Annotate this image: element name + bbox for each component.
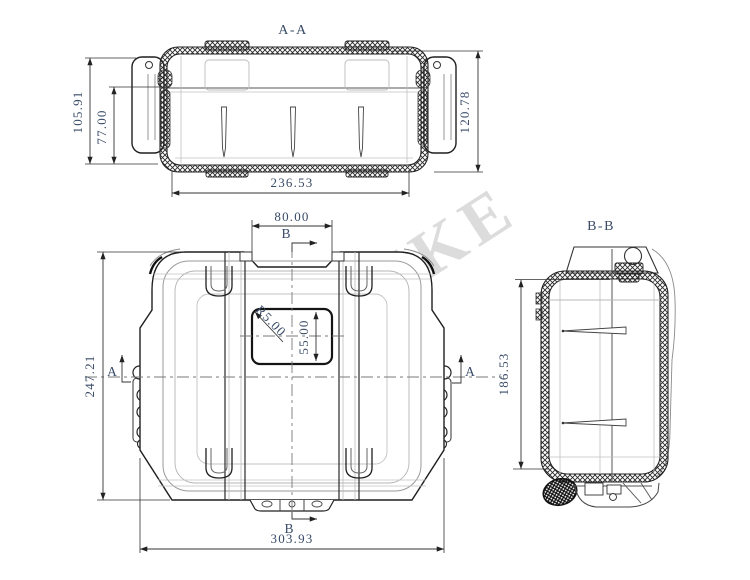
section-aa-label: A-A — [278, 23, 307, 38]
case-drawing-canvas: KAXIKE — [0, 0, 750, 580]
marker-text-b-bottom: B — [284, 521, 293, 536]
view-section-aa — [132, 41, 456, 177]
bb-ribs — [562, 327, 626, 426]
marker-text-a-right: A — [465, 364, 475, 379]
latch-loop — [625, 248, 642, 265]
latch-hole — [434, 62, 441, 69]
aa-left-latch-plate — [132, 57, 164, 153]
dim-text-77-00: 77.00 — [94, 109, 109, 144]
section-bb-label: B-B — [587, 219, 615, 234]
aa-right-latch-plate — [424, 57, 456, 153]
dim-text-55-00: 55.00 — [296, 319, 311, 354]
dim-text-105-91: 105.91 — [70, 91, 85, 134]
dim-text-247-21: 247.21 — [82, 355, 97, 398]
dim-text-186-53: 186.53 — [496, 353, 511, 396]
aa-ribs — [222, 107, 364, 157]
bb-interior-lines — [549, 249, 660, 482]
section-marker-b-top — [292, 243, 317, 252]
view-section-bb — [536, 247, 675, 509]
dim-text-80-00: 80.00 — [274, 209, 309, 224]
section-marker-b-bottom — [292, 512, 317, 519]
technical-drawing-page: KAXIKE — [0, 0, 750, 580]
marker-text-b-top: B — [281, 226, 290, 241]
dim-text-120-78: 120.78 — [457, 91, 472, 134]
marker-text-a-left: A — [107, 364, 117, 379]
latch-hole — [146, 62, 153, 69]
section-marker-a-left — [122, 355, 131, 382]
dim-bb-inner-height — [513, 280, 610, 470]
section-marker-a-right — [452, 355, 461, 383]
dim-text-236-53: 236.53 — [271, 175, 314, 190]
